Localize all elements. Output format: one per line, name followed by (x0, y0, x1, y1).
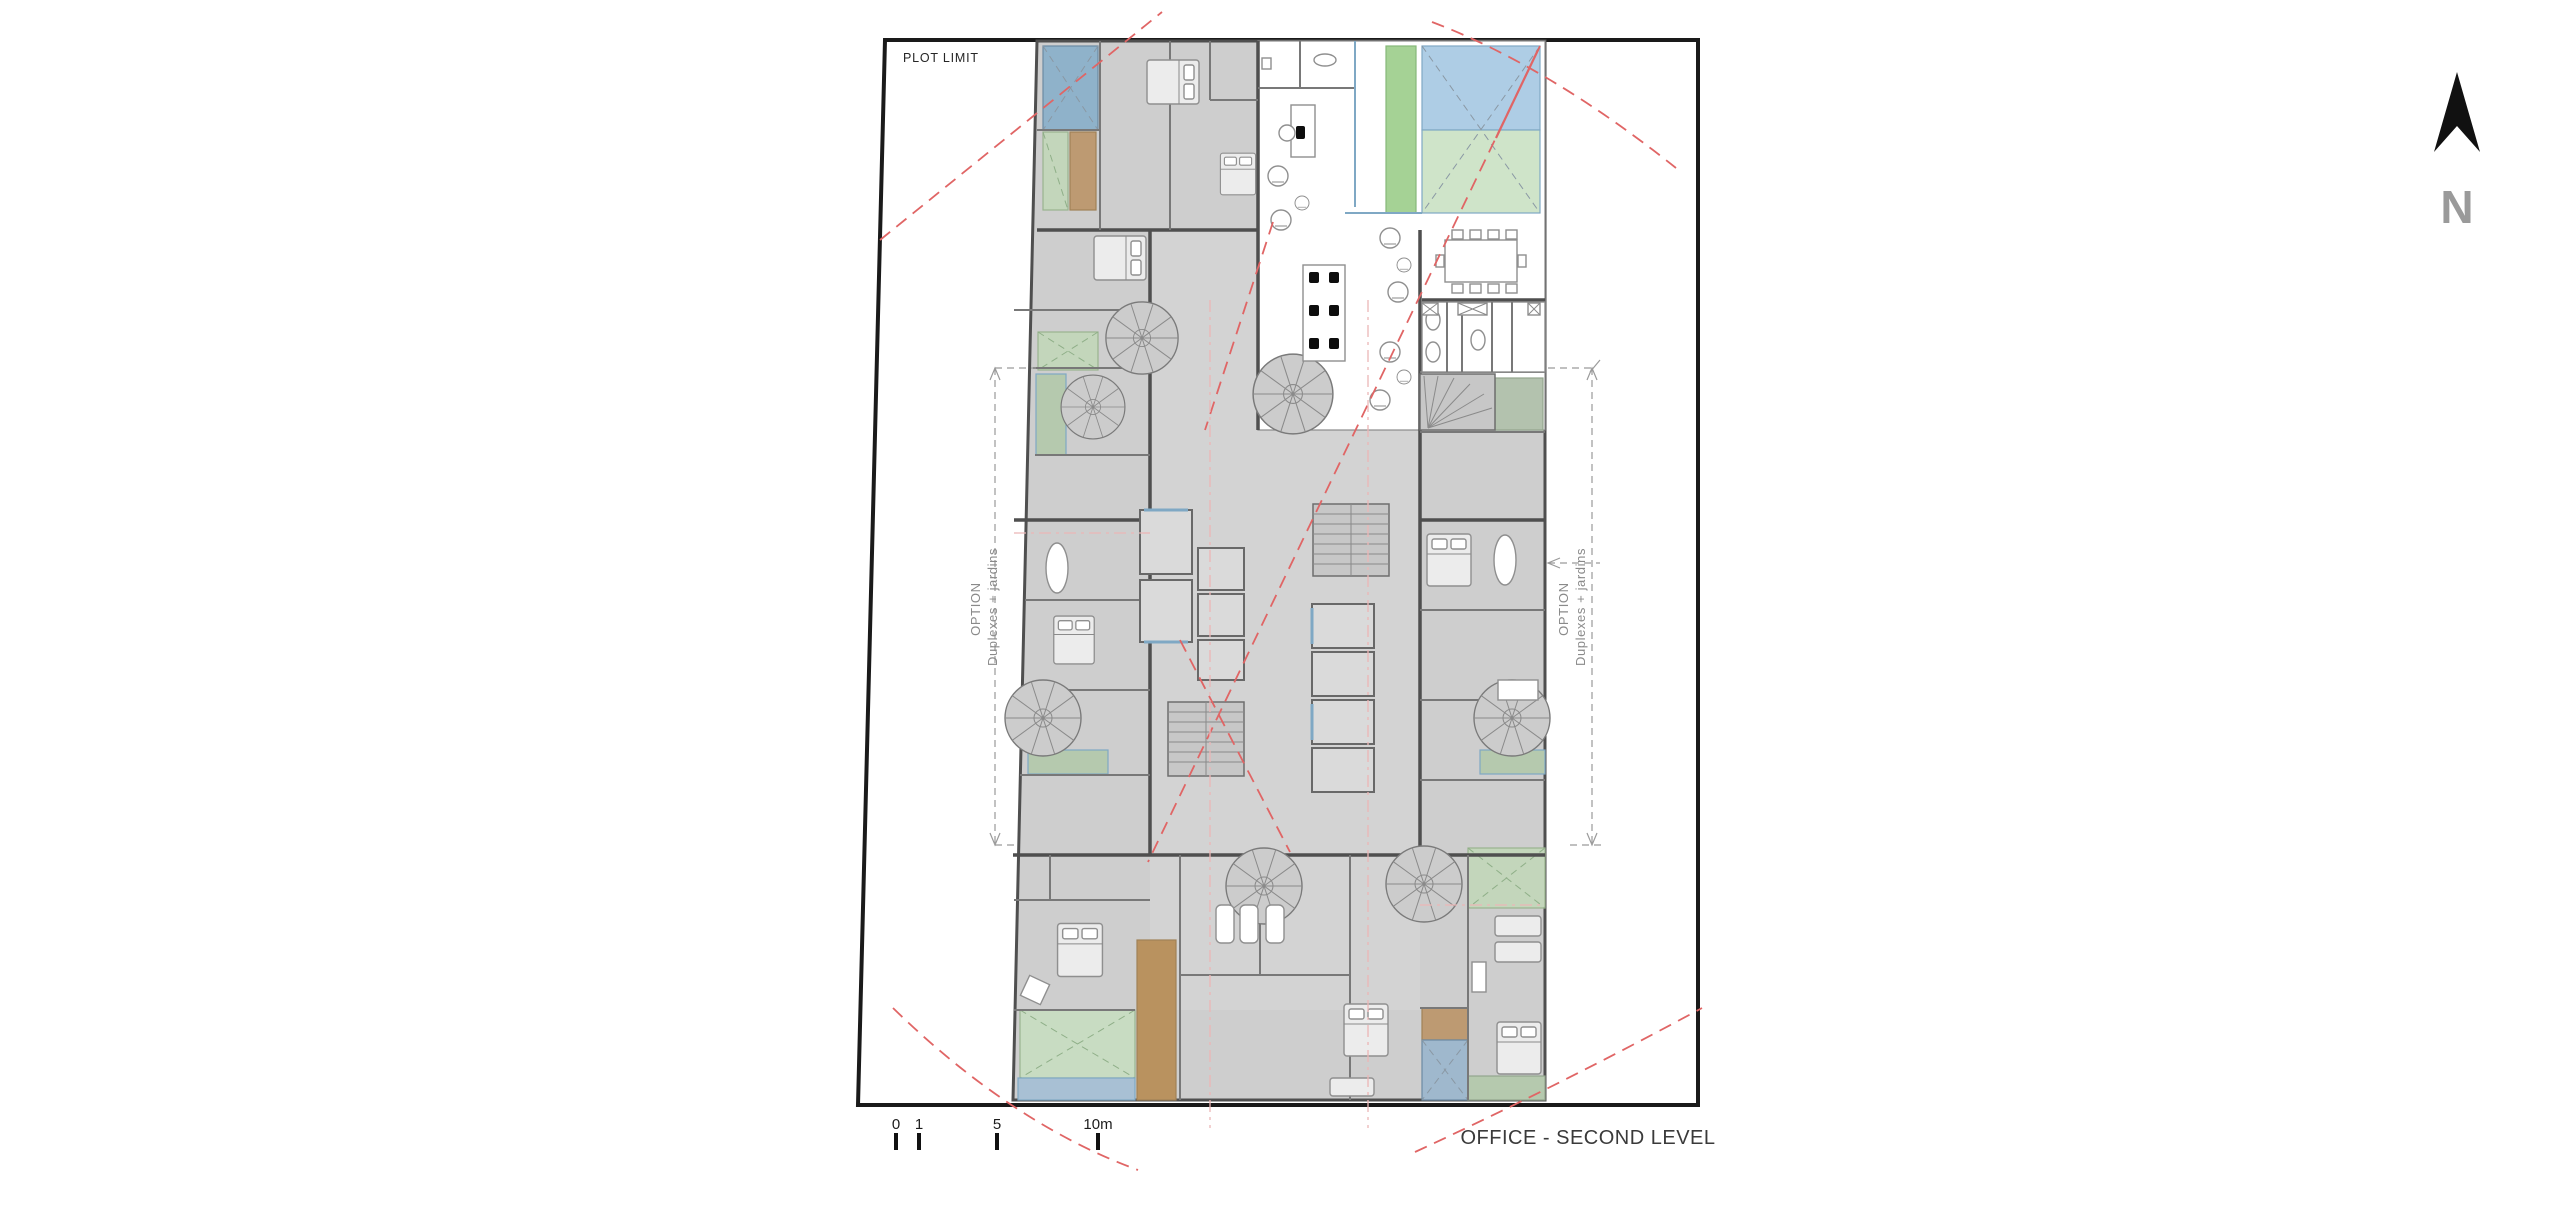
spiral-stair (1253, 354, 1333, 434)
bed (1147, 60, 1199, 104)
elevator-shaft (1312, 748, 1374, 792)
bed (1220, 153, 1255, 195)
spiral-stair (1226, 848, 1302, 924)
option-label-right: OPTION Duplexes + jardins (1556, 548, 1588, 666)
elevator-shaft (1140, 580, 1192, 642)
scale-tick (995, 1133, 999, 1150)
skylight-blue-zone (1422, 46, 1540, 130)
bed (1058, 923, 1103, 976)
scale-tick (894, 1133, 898, 1150)
bottomleft-blue-band (1018, 1078, 1135, 1100)
bottom-brown-strip (1137, 940, 1176, 1100)
scale-tick-label: 10m (1083, 1116, 1112, 1133)
elevator-shaft (1198, 548, 1244, 590)
topleft-brown-zone (1070, 132, 1096, 210)
north-arrow: N (2434, 72, 2480, 233)
bed (1344, 1004, 1388, 1056)
bed (1054, 616, 1094, 664)
scale-tick-label: 1 (915, 1116, 923, 1133)
floor-plan-title: OFFICE - SECOND LEVEL (1461, 1127, 1716, 1149)
north-label: N (2440, 181, 2473, 233)
conference-table (1445, 240, 1517, 282)
stair-office-main (1420, 374, 1495, 430)
bed (1497, 1022, 1541, 1074)
elevator-shaft (1312, 604, 1374, 648)
elevator-shaft (1312, 652, 1374, 696)
stair-green-zone (1495, 378, 1543, 430)
scale-tick (917, 1133, 921, 1150)
bed (1427, 534, 1471, 586)
stair-core-right (1313, 504, 1389, 576)
bottomright-green-band (1468, 1076, 1545, 1100)
spiral-stair (1061, 375, 1125, 439)
plot-limit-label: PLOT LIMIT (903, 51, 979, 65)
north-arrow-icon (2434, 72, 2480, 152)
option-label-left: OPTION Duplexes + jardins (968, 548, 1000, 666)
elevator-shaft (1198, 594, 1244, 636)
spiral-stair (1386, 846, 1462, 922)
skylight-green-zone (1422, 130, 1540, 213)
bathtub (1494, 535, 1516, 585)
elevator-shaft (1198, 640, 1244, 680)
elevator-shaft (1312, 700, 1374, 744)
elevator-shaft (1140, 510, 1192, 574)
page: { "title": "OFFICE - SECOND LEVEL", "plo… (0, 0, 2560, 1219)
scale-tick (1096, 1133, 1100, 1150)
floor-plan-canvas: PLOT LIMIT (0, 0, 2560, 1219)
bed (1094, 236, 1146, 280)
bottomright-tan-zone (1422, 1008, 1468, 1040)
spiral-stair (1106, 302, 1178, 374)
stair-core-left (1168, 702, 1244, 776)
scale-tick-label: 5 (993, 1116, 1001, 1133)
scale-tick-label: 0 (892, 1116, 900, 1133)
green-strip-zone (1386, 46, 1416, 213)
spiral-stair (1005, 680, 1081, 756)
bathtub (1046, 543, 1068, 593)
